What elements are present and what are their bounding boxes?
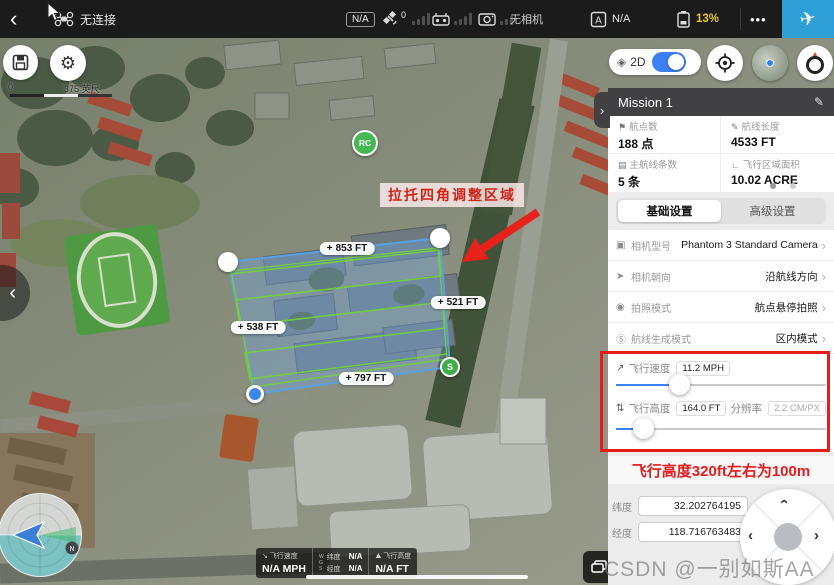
back-button[interactable]: ‹ [10,0,17,38]
nudge-left-button[interactable]: ‹ [748,527,753,544]
plus-icon: + [438,297,444,308]
gps-badge: N/A [346,12,375,27]
panel-collapse-tab[interactable]: › [594,92,610,128]
more-menu-button[interactable]: ••• [750,0,767,38]
plus-icon: + [346,373,352,384]
speed-icon: ↘ [262,553,270,560]
settings-tabs: 基础设置 高级设置 [616,198,826,224]
compass-icon [804,51,826,75]
scale-bar [10,94,112,97]
status-bar: ‹ 无连接 N/A 0 [0,0,834,38]
back-chevron-icon: ‹ [10,6,17,32]
lines-icon: ▤ [618,160,627,170]
altitude-slider-track[interactable] [616,428,826,430]
mission-title: Mission 1 [618,95,673,110]
flight-mode-status: A N/A [590,0,630,38]
drag-corners-annotation: 拉托四角调整区域 [380,183,524,207]
toggle-knob [668,54,684,70]
locate-me-button[interactable] [707,45,743,81]
battery-status: 13% [676,0,719,38]
telemetry-bar: ↘ 飞行速度 N/A MPH WGS 纬度N/A 经度N/A ⛰ 飞行高度 N/… [256,548,417,578]
speed-value: 11.2 MPH [676,361,730,376]
watermark: CSDN @一别如斯AA [604,553,815,583]
shutter-icon: ◉ [616,302,631,313]
nudge-right-button[interactable]: › [814,527,819,544]
route-length-icon: ✎ [731,122,739,132]
satellite-icon [383,11,399,27]
battery-icon [676,10,691,28]
altitude-icon: ⇅ [616,403,624,414]
edge-length-label: +853 FT [320,242,375,255]
start-point-marker[interactable]: S [440,357,460,377]
chevron-left-icon: ‹ [9,282,16,305]
area-corner-handle-topright[interactable] [430,228,450,248]
scale-zero-label: 0 [8,82,13,92]
speed-slider-thumb[interactable] [669,374,690,395]
save-icon [12,54,29,71]
minimap-button[interactable] [752,45,788,81]
stat-main-lines: ▤主航线条数 5 条 [608,154,721,192]
north-badge: N [69,546,74,553]
mission-header: Mission 1 ✎ [608,88,834,116]
speed-slider-track[interactable] [616,384,826,386]
mission-panel: Mission 1 ✎ ⚑航点数 188 点 ✎航线长度 4533 FT ▤主航… [608,88,834,585]
compass-button[interactable] [797,45,833,81]
telemetry-altitude: ⛰ 飞行高度 N/A FT [368,548,417,578]
setting-camera-heading[interactable]: ➤ 相机朝向 沿航线方向 › [608,261,834,292]
save-mission-button[interactable] [3,45,38,80]
altitude-value: 164.0 FT [676,401,726,416]
page-dot[interactable] [770,183,776,189]
stat-waypoints: ⚑航点数 188 点 [608,116,721,154]
connection-status: 无连接 [80,11,116,28]
edit-mission-icon[interactable]: ✎ [814,95,824,109]
rc-home-marker: RC [352,130,378,156]
chevron-right-icon: › [822,331,826,346]
setting-capture-mode[interactable]: ◉ 拍照模式 航点悬停拍照 › [608,292,834,323]
telemetry-coords: WGS 纬度N/A 经度N/A [312,548,369,578]
more-dots-icon: ••• [750,12,767,27]
tab-advanced-settings[interactable]: 高级设置 [721,200,824,222]
area-corner-handle-topleft[interactable] [218,252,238,272]
waypoint-icon: ⚑ [618,122,626,132]
takeoff-button[interactable]: ✈ [782,0,834,38]
latitude-input[interactable]: 32.202764195 [638,496,748,516]
dpad-center[interactable] [774,523,802,551]
mission-stats: ⚑航点数 188 点 ✎航线长度 4533 FT ▤主航线条数 5 条 ∟10.… [608,116,834,192]
mission-settings-button[interactable]: ⚙ [50,45,86,81]
topbar-divider [740,8,741,30]
nudge-up-button[interactable]: › [775,499,792,504]
stat-route-length: ✎航线长度 4533 FT [721,116,834,154]
edge-length-label: +797 FT [339,372,394,385]
minimap-position-dot [766,59,774,67]
battery-percent: 13% [696,13,719,25]
setting-camera-model[interactable]: ▣ 相机型号 Phantom 3 Standard Camera › [608,230,834,261]
camera-status: 无相机 [510,0,543,38]
flight-sliders: ↗ 飞行速度 11.2 MPH ⇅ 飞行高度 164.0 FT 分辨率 2.2 … [608,354,834,452]
locate-icon [715,53,735,73]
telemetry-speed: ↘ 飞行速度 N/A MPH [256,548,312,578]
chevron-right-icon: › [600,103,604,118]
area-icon: ∟ [731,160,740,170]
settings-rows: ▣ 相机型号 Phantom 3 Standard Camera › ➤ 相机朝… [608,230,834,354]
camera-signal [478,0,513,38]
gps-status: N/A [346,0,375,38]
satellite-count: 0 [401,10,406,20]
speed-icon: ↗ [616,363,624,374]
area-corner-handle-bottomleft[interactable] [246,385,264,403]
longitude-input[interactable]: 118.716763483 [638,522,748,542]
camera-icon: ▣ [616,240,631,251]
view-mode-label: 2D [630,55,645,69]
edge-length-label: +538 FT [231,321,286,334]
remote-controller-icon [432,12,450,26]
plus-icon: + [327,243,333,254]
layers-icon: ◈ [617,55,626,69]
route-mode-icon: Ⓢ [616,331,631,346]
view-mode-pill[interactable]: ◈ 2D [609,49,701,75]
view-mode-toggle[interactable] [652,52,686,72]
plus-icon: + [238,322,244,333]
chevron-right-icon: › [822,300,826,315]
camera-icon [478,12,496,26]
svg-text:A: A [595,15,602,26]
remote-status [432,0,472,38]
signal-bars-icon [412,13,430,25]
direction-icon: ➤ [616,271,631,282]
page-dot[interactable] [790,183,796,189]
chevron-right-icon: › [822,269,826,284]
airplane-icon: ✈ [798,6,818,32]
edge-length-label: +521 FT [431,296,486,309]
aircraft-connection: 无连接 [54,0,116,38]
altitude-note-annotation: 飞行高度320ft左右为100m [608,456,834,484]
signal-bars-icon [454,13,472,25]
tab-basic-settings[interactable]: 基础设置 [618,200,721,222]
chevron-right-icon: › [822,238,826,253]
satellite-status: 0 [383,0,430,38]
stat-area: ∟10.02 ACRE飞行区域面积 10.02 ACRE [721,154,834,192]
mouse-cursor [47,2,61,22]
setting-route-mode[interactable]: Ⓢ 航线生成模式 区内模式 › [608,323,834,354]
clipboard-a-icon: A [590,11,607,28]
gear-icon: ⚙ [60,53,76,74]
home-indicator [306,575,528,579]
altitude-slider-thumb[interactable] [633,418,654,439]
resolution-value: 2.2 CM/PX [768,401,826,416]
attitude-compass: N [0,491,88,585]
